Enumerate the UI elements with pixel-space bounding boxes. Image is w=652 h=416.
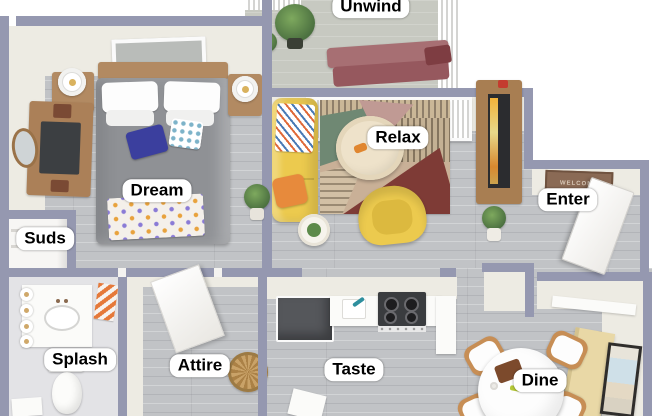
room-label-suds: Suds: [16, 227, 74, 250]
plant-pot-icon: [287, 38, 303, 49]
wall: [537, 272, 649, 281]
outdoor-cushion: [424, 44, 452, 65]
room-label-attire: Attire: [170, 354, 230, 377]
patterned-pouch: [168, 118, 204, 150]
wall: [640, 160, 649, 281]
wall: [262, 0, 272, 268]
partition-wall-face: [484, 271, 530, 311]
sofa: [272, 98, 318, 222]
floorplan-scene: WELCOME Unwind Dream: [0, 0, 652, 416]
living-plant-icon: [482, 206, 506, 230]
plant-pot-icon: [487, 228, 501, 241]
room-label-text: Taste: [332, 359, 375, 378]
table-item: [353, 142, 368, 154]
stove-cooktop: [378, 292, 426, 326]
wall: [258, 277, 267, 416]
vanity-light-icon: [20, 288, 33, 301]
room-label-text: Enter: [546, 189, 589, 208]
bed: [96, 78, 230, 244]
throw-blanket: [275, 103, 315, 153]
sink-basin: [44, 305, 80, 331]
room-label-splash: Splash: [44, 348, 116, 371]
balcony-plant-icon: [275, 4, 315, 42]
plate-green-icon: [307, 223, 321, 237]
wall: [0, 210, 76, 219]
faucet-icon: [64, 299, 68, 303]
room-label-text: Unwind: [340, 0, 401, 15]
table-lamp-icon: [232, 76, 258, 102]
bath-fixture: [11, 397, 42, 416]
wall: [0, 268, 118, 277]
vanity-light-icon: [20, 320, 33, 333]
wall: [222, 268, 302, 277]
door-jamb: [214, 268, 222, 277]
side-table: [298, 214, 330, 246]
tv-icon: [39, 121, 81, 174]
room-label-relax: Relax: [367, 126, 428, 149]
room-label-text: Dream: [131, 180, 184, 199]
pillow-orange: [271, 173, 309, 209]
burner-icon: [405, 311, 418, 324]
burner-icon: [384, 297, 399, 312]
stove-control-strip: [378, 326, 426, 332]
console-decor: [498, 80, 508, 88]
bedroom-plant-icon: [244, 184, 270, 210]
room-label-text: Suds: [24, 228, 66, 247]
bed-pillow: [163, 81, 220, 113]
cup-icon: [490, 382, 498, 390]
room-label-enter: Enter: [538, 188, 597, 211]
dresser-item: [51, 180, 69, 193]
table-lamp-icon: [58, 68, 86, 96]
faucet-icon: [56, 299, 60, 303]
dresser-item: [53, 104, 71, 119]
tv-icon: [488, 94, 510, 188]
tv-screen-glow: [490, 98, 498, 184]
burner-icon: [384, 311, 397, 324]
burner-icon: [404, 297, 419, 312]
partition-wall: [525, 263, 534, 317]
room-label-text: Relax: [375, 127, 420, 146]
room-label-unwind: Unwind: [332, 0, 409, 19]
wall: [440, 268, 456, 277]
refrigerator-top: [276, 296, 334, 342]
toilet-bowl: [52, 372, 82, 414]
room-label-dream: Dream: [123, 179, 192, 202]
bed-pillow: [101, 81, 158, 113]
door-jamb: [118, 268, 126, 277]
room-label-text: Dine: [522, 370, 559, 389]
tv-console: [476, 80, 522, 204]
room-label-text: Splash: [52, 349, 108, 368]
bed-pillow: [106, 110, 154, 126]
wall: [524, 160, 649, 169]
plant-pot-icon: [250, 208, 264, 220]
wall: [524, 88, 533, 169]
wall: [16, 16, 272, 26]
kitchen-cabinet: [436, 296, 456, 354]
closet-wall-face: [127, 277, 143, 416]
vanity-light-icon: [20, 304, 33, 317]
vanity-light-icon: [20, 335, 33, 348]
wall: [118, 277, 127, 416]
accent-pillow-blue: [125, 124, 169, 161]
wall: [643, 272, 652, 416]
room-label-text: Attire: [178, 355, 222, 374]
armchair-seat: [371, 198, 414, 236]
room-label-taste: Taste: [324, 358, 383, 381]
room-label-dine: Dine: [514, 369, 567, 392]
